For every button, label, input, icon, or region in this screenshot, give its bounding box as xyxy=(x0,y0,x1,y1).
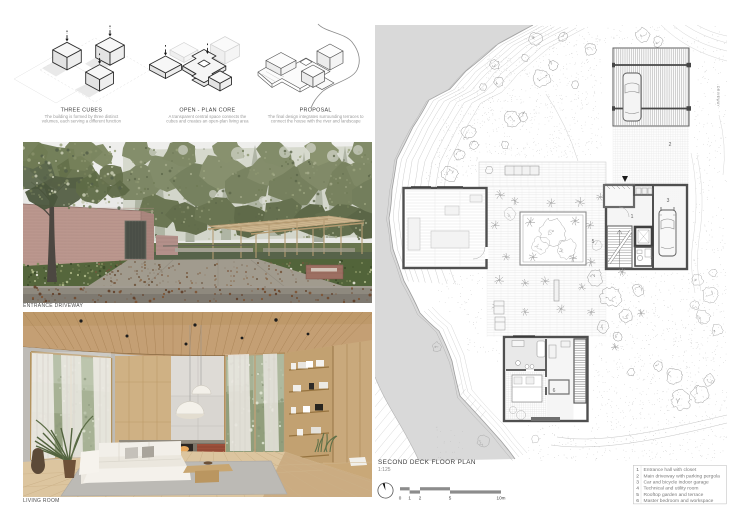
svg-text:OPEN - PLAN CORE: OPEN - PLAN CORE xyxy=(179,107,235,113)
svg-text:5: 5 xyxy=(449,496,452,501)
svg-text:Rooftop garden and terrace: Rooftop garden and terrace xyxy=(644,492,704,498)
svg-text:Technical and utility room: Technical and utility room xyxy=(644,486,699,492)
svg-text:0: 0 xyxy=(399,496,402,501)
svg-text:Main driveway with parking per: Main driveway with parking pergola xyxy=(644,473,721,479)
svg-text:DRIVEWAY: DRIVEWAY xyxy=(716,86,720,107)
svg-text:2: 2 xyxy=(669,142,672,148)
svg-text:1: 1 xyxy=(631,214,634,220)
svg-text:3: 3 xyxy=(636,480,639,486)
svg-text:Master bedroom and workspace: Master bedroom and workspace xyxy=(644,498,714,504)
svg-text:volumes, each serving a differ: volumes, each serving a different functi… xyxy=(42,119,122,124)
svg-text:3: 3 xyxy=(667,198,670,204)
svg-text:4: 4 xyxy=(636,486,639,492)
svg-text:4: 4 xyxy=(651,256,654,262)
svg-text:cubes and creates an open-plan: cubes and creates an open-plan living ar… xyxy=(166,119,249,124)
svg-text:2: 2 xyxy=(419,496,422,501)
svg-text:2: 2 xyxy=(636,473,639,479)
svg-text:10m: 10m xyxy=(497,496,506,501)
svg-text:THREE CUBES: THREE CUBES xyxy=(61,107,103,113)
svg-text:Entrance hall with closet: Entrance hall with closet xyxy=(644,467,697,473)
svg-text:6: 6 xyxy=(553,388,556,394)
svg-text:connect the house with the riv: connect the house with the river and lan… xyxy=(271,119,361,124)
svg-text:1: 1 xyxy=(408,496,411,501)
svg-text:5: 5 xyxy=(636,492,639,498)
svg-text:5: 5 xyxy=(592,239,595,245)
svg-text:1: 1 xyxy=(636,467,639,473)
svg-text:PROPOSAL: PROPOSAL xyxy=(300,107,332,113)
svg-text:6: 6 xyxy=(636,498,639,504)
svg-text:Car and bicycle indoor garage: Car and bicycle indoor garage xyxy=(644,480,710,486)
